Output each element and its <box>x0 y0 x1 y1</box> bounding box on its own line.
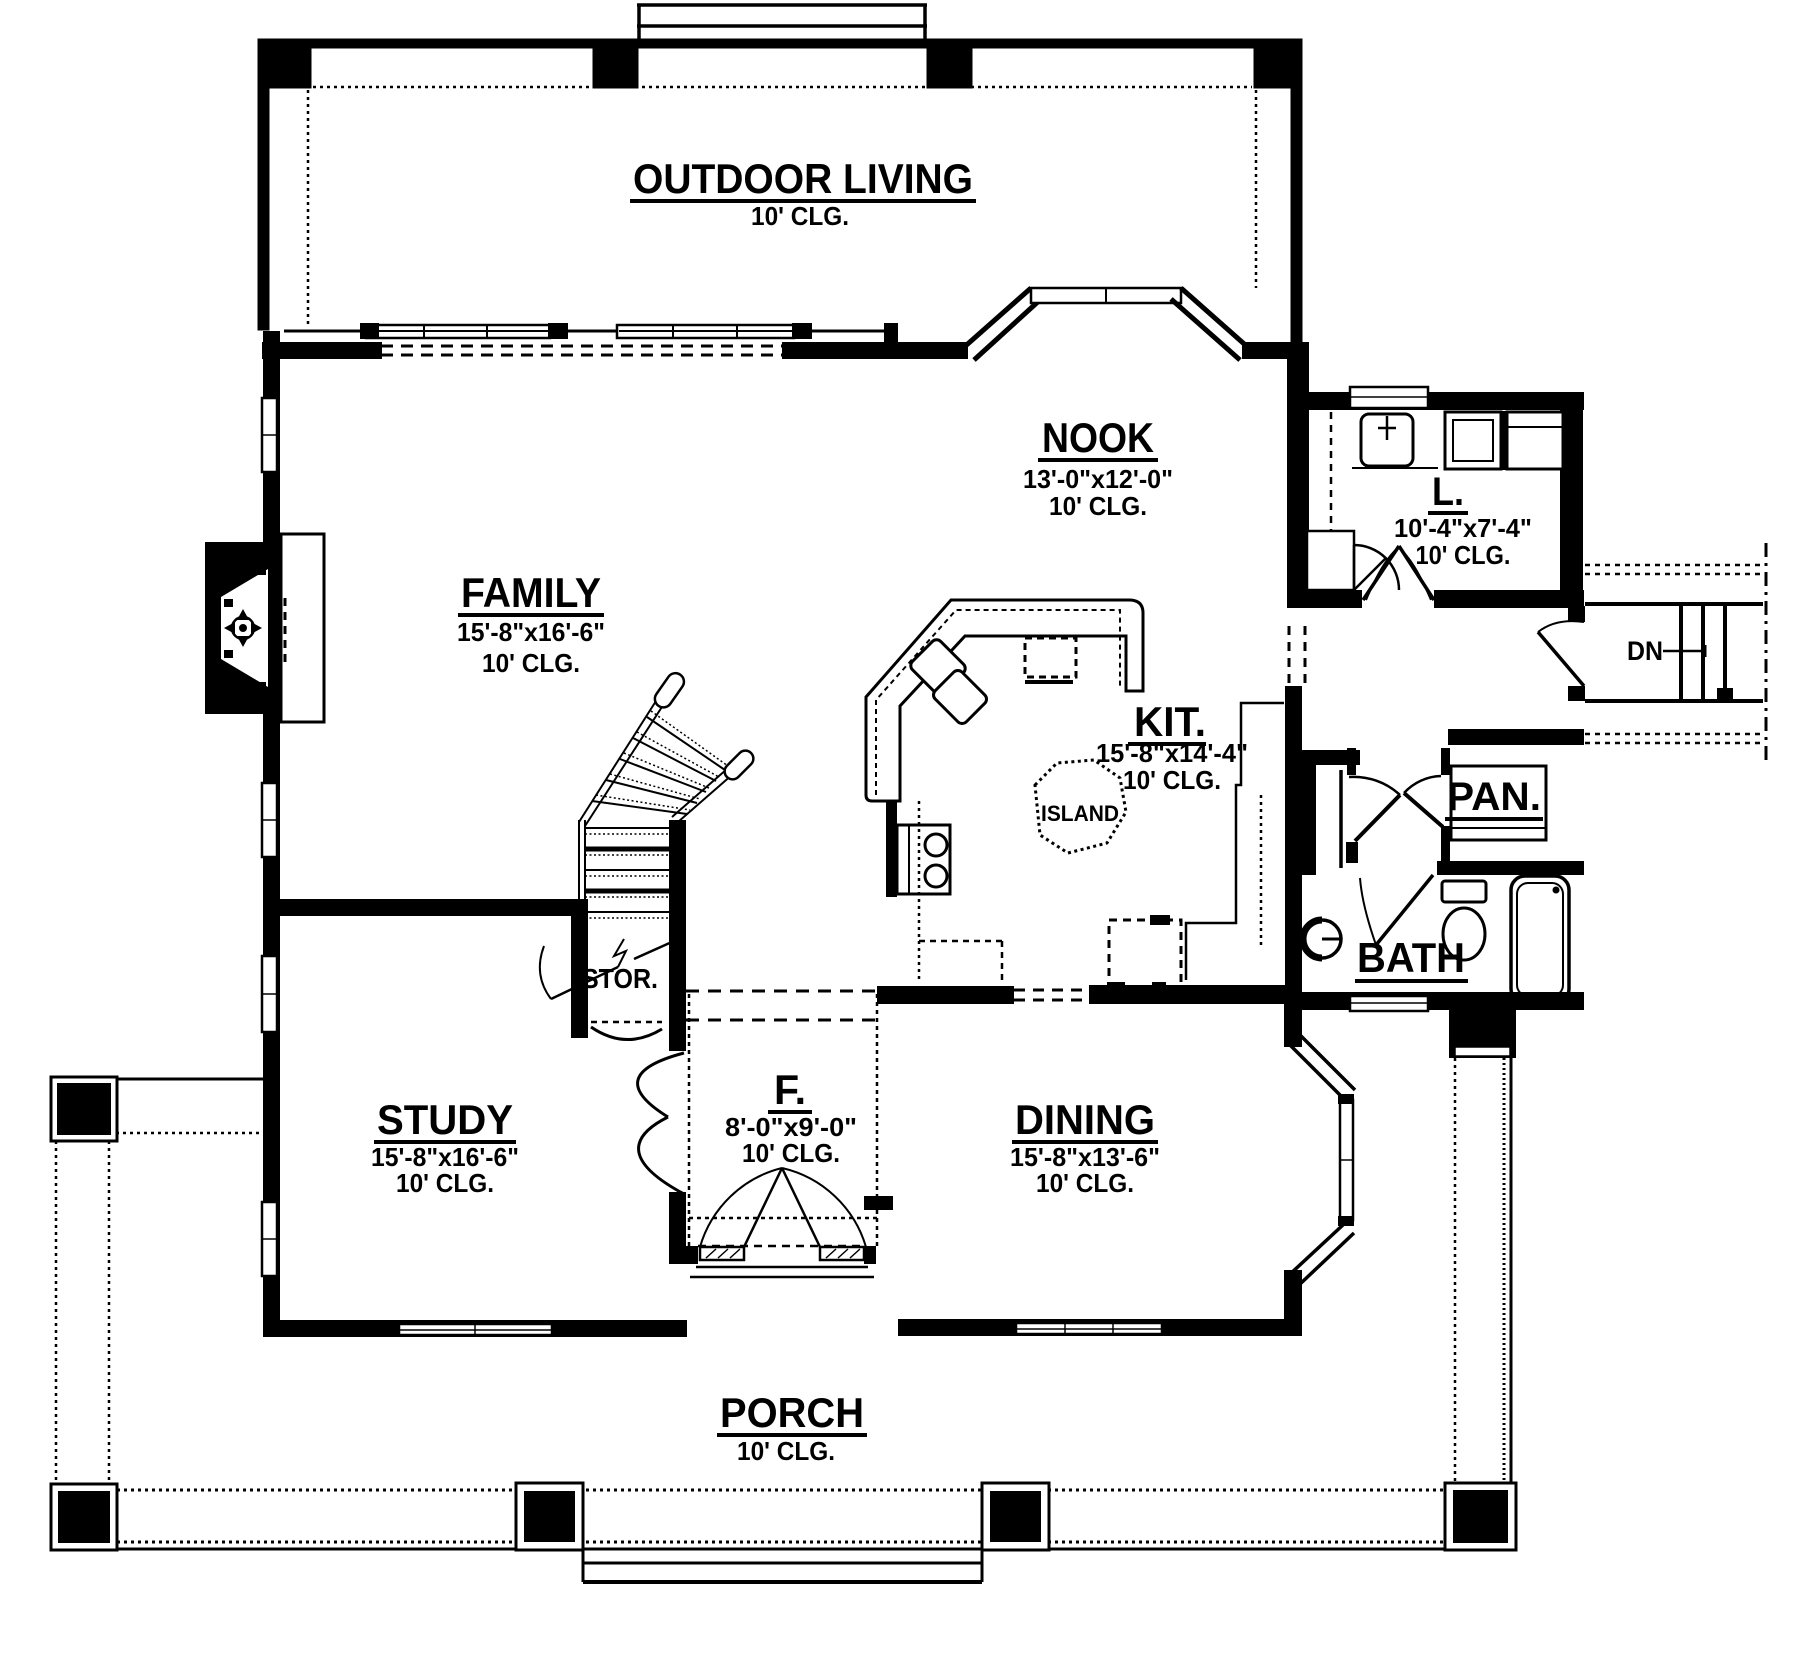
svg-text:10' CLG.: 10' CLG. <box>1123 765 1221 795</box>
svg-text:10' CLG.: 10' CLG. <box>1049 491 1147 521</box>
svg-text:PORCH: PORCH <box>720 1389 864 1436</box>
svg-text:10' CLG.: 10' CLG. <box>396 1168 494 1198</box>
svg-text:DINING: DINING <box>1015 1096 1155 1143</box>
svg-text:NOOK: NOOK <box>1042 414 1154 461</box>
svg-text:15'-8"x14'-4": 15'-8"x14'-4" <box>1096 738 1248 768</box>
svg-text:ISLAND: ISLAND <box>1041 801 1119 826</box>
svg-text:15'-8"x16'-6": 15'-8"x16'-6" <box>457 617 605 647</box>
svg-text:10'-4"x7'-4": 10'-4"x7'-4" <box>1394 513 1532 543</box>
svg-text:10' CLG.: 10' CLG. <box>742 1138 840 1168</box>
svg-text:OUTDOOR LIVING: OUTDOOR LIVING <box>633 155 973 202</box>
svg-text:PAN.: PAN. <box>1447 775 1541 819</box>
svg-text:STOR.: STOR. <box>582 963 658 994</box>
svg-text:DN: DN <box>1627 636 1663 666</box>
svg-text:F.: F. <box>774 1066 806 1113</box>
svg-text:BATH: BATH <box>1357 934 1465 981</box>
svg-text:10' CLG.: 10' CLG. <box>737 1436 835 1466</box>
svg-text:L.: L. <box>1432 470 1464 514</box>
svg-text:10' CLG.: 10' CLG. <box>1036 1168 1134 1198</box>
svg-text:FAMILY: FAMILY <box>461 569 601 616</box>
svg-text:13'-0"x12'-0": 13'-0"x12'-0" <box>1023 464 1173 494</box>
svg-text:10' CLG.: 10' CLG. <box>751 201 849 231</box>
svg-text:STUDY: STUDY <box>377 1096 513 1143</box>
svg-text:10' CLG.: 10' CLG. <box>482 648 580 678</box>
svg-text:10' CLG.: 10' CLG. <box>1416 540 1511 570</box>
